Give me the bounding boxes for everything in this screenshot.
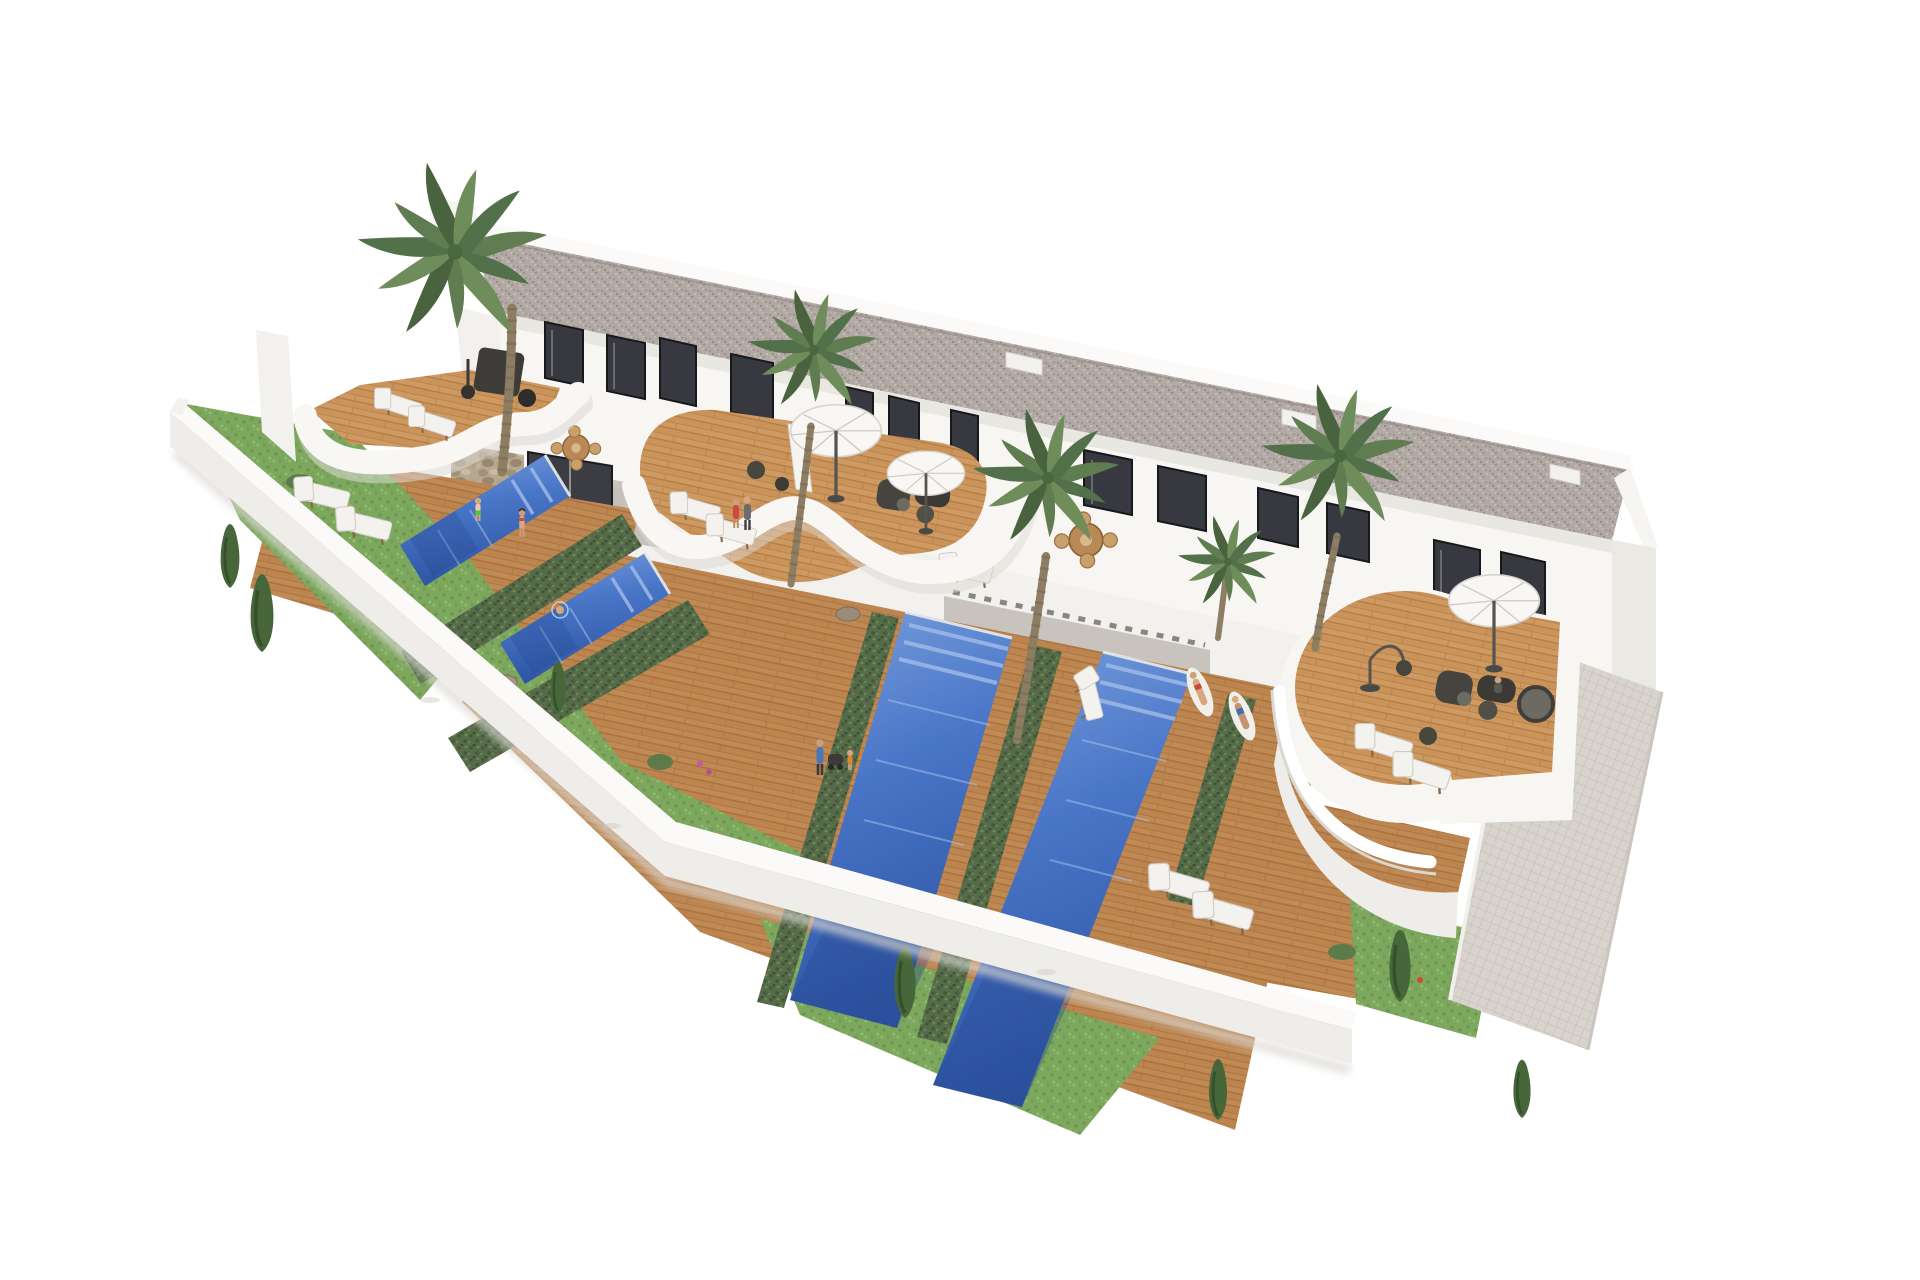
swimmer — [556, 606, 564, 614]
person-seated — [1494, 677, 1502, 693]
pouf — [775, 477, 789, 491]
hanging-chair — [1519, 687, 1553, 721]
pouf — [1419, 727, 1437, 745]
villa-complex-render — [0, 0, 1920, 1280]
pouf — [747, 461, 765, 479]
render-canvas — [0, 0, 1920, 1280]
